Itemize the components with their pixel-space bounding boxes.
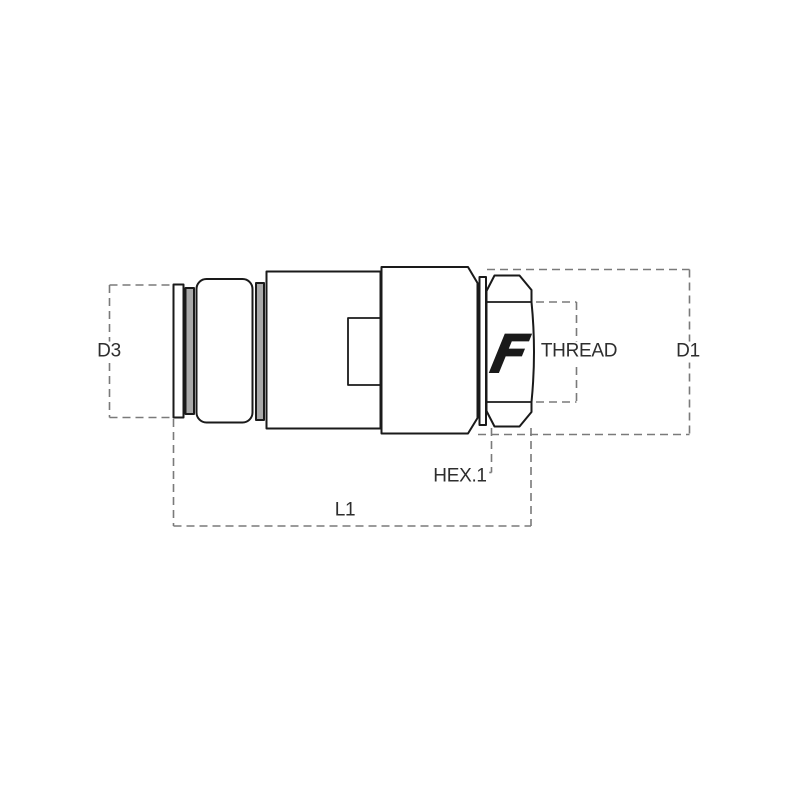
body-front-section [267,272,381,429]
coupling-drawing: F [0,0,800,800]
washer-band [480,277,487,425]
dimension-label-d1: D1 [673,342,703,363]
dimension-label-hex1: HEX.1 [430,467,489,488]
rear-groove-ring [256,283,264,420]
dimension-label-thread: THREAD [538,342,620,363]
front-groove-ring [186,288,195,414]
end-flange [174,285,184,418]
dimension-label-d3: D3 [94,342,124,363]
drawing-canvas: F D3 THREAD D1 HEX.1 L1 [0,0,800,800]
release-sleeve [197,279,253,423]
dimension-label-l1: L1 [332,501,359,522]
body-rear-collar [382,267,478,434]
